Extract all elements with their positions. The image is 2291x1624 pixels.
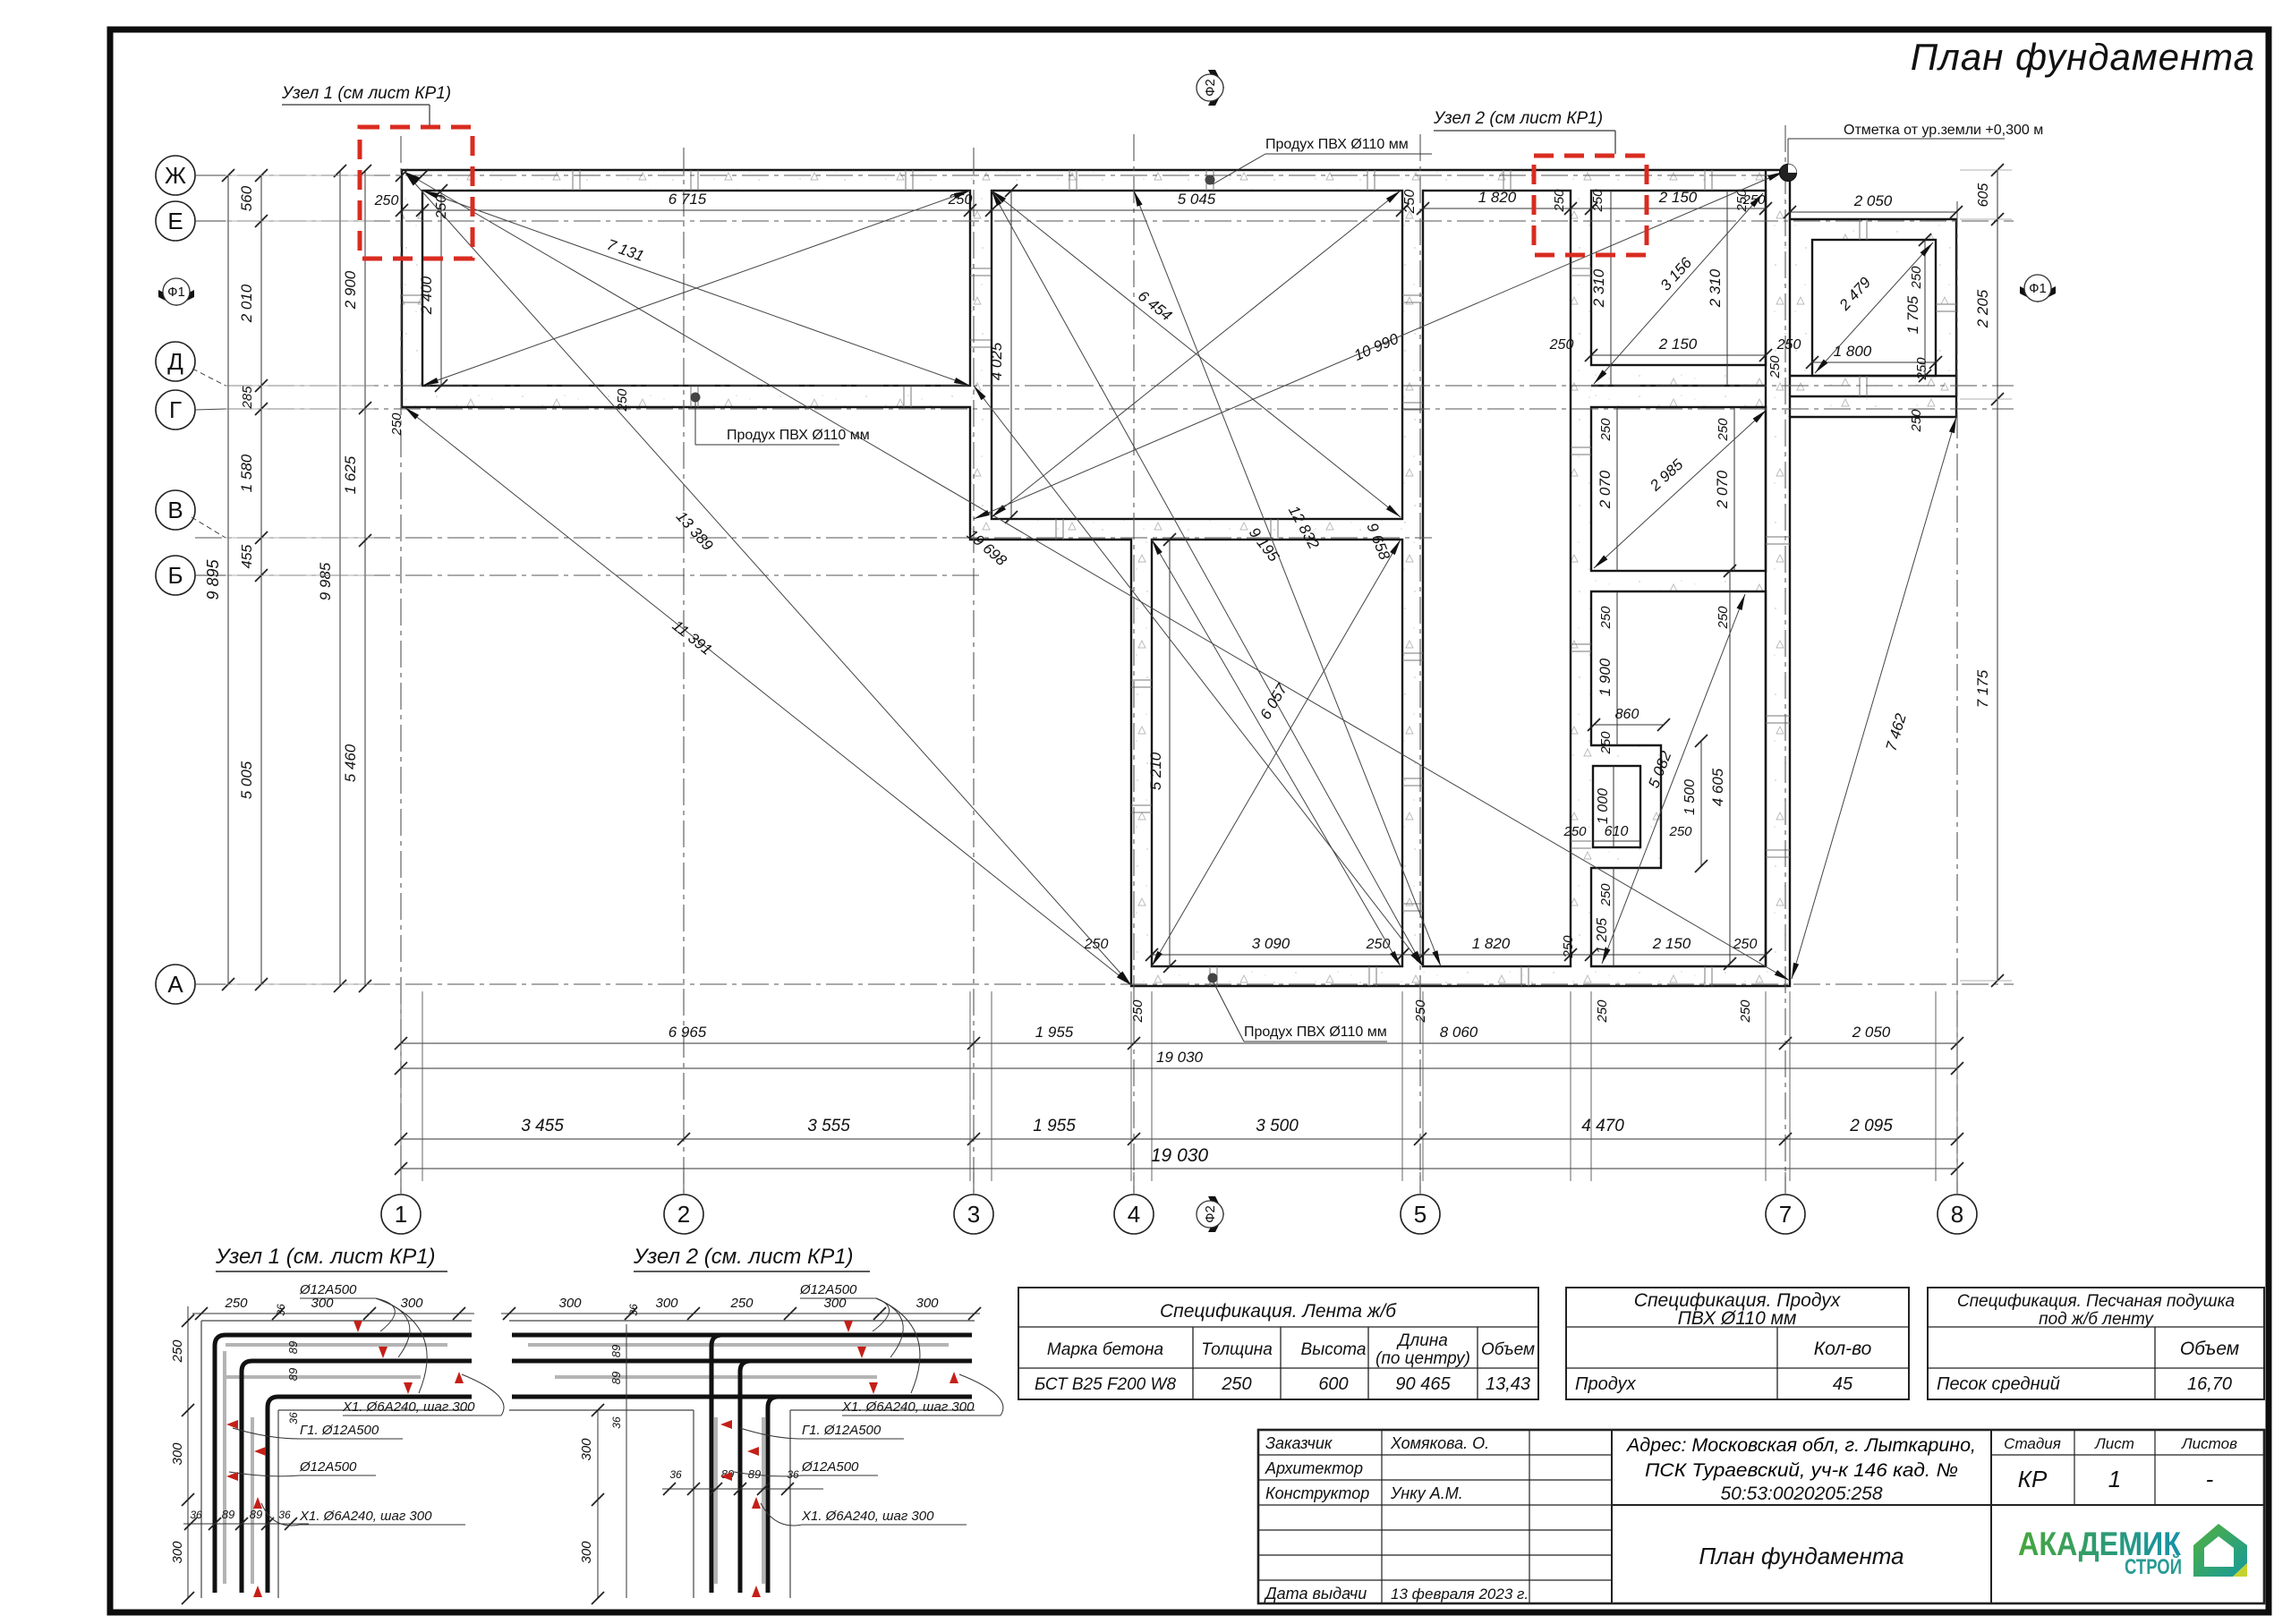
svg-text:Продух: Продух (1575, 1374, 1637, 1394)
svg-text:610: 610 (1605, 824, 1629, 839)
svg-text:Спецификация. Лента ж/б: Спецификация. Лента ж/б (1160, 1301, 1397, 1322)
svg-text:250: 250 (1130, 999, 1145, 1024)
svg-text:250: 250 (1914, 357, 1929, 381)
svg-text:Ø12А500: Ø12А500 (799, 1282, 857, 1297)
svg-text:250: 250 (1549, 337, 1574, 353)
svg-text:250: 250 (1598, 606, 1614, 630)
svg-text:13,43: 13,43 (1486, 1374, 1530, 1394)
svg-text:89: 89 (250, 1508, 262, 1521)
svg-text:Унку А.М.: Унку А.М. (1390, 1484, 1463, 1502)
svg-text:2 150: 2 150 (1658, 336, 1698, 353)
svg-text:1 820: 1 820 (1472, 935, 1511, 952)
svg-text:(по центру): (по центру) (1375, 1349, 1470, 1368)
svg-text:250: 250 (1563, 824, 1587, 839)
svg-text:Ø12А500: Ø12А500 (299, 1282, 357, 1297)
svg-text:250: 250 (1413, 999, 1428, 1024)
svg-text:300: 300 (916, 1296, 939, 1311)
svg-text:Узел 2 (см лист КР1): Узел 2 (см лист КР1) (1433, 109, 1603, 128)
svg-text:План фундамента: План фундамента (1911, 36, 2255, 78)
svg-text:89: 89 (286, 1341, 300, 1354)
svg-text:Дата выдачи: Дата выдачи (1264, 1585, 1367, 1603)
svg-text:250: 250 (1552, 189, 1567, 213)
svg-text:Стадия: Стадия (2004, 1435, 2061, 1452)
svg-text:Спецификация. Песчаная подушка: Спецификация. Песчаная подушка (1957, 1292, 2235, 1311)
svg-text:Ø12А500: Ø12А500 (801, 1459, 859, 1475)
svg-text:250: 250 (1595, 999, 1610, 1024)
svg-text:Адрес: Московская обл, г. Лытк: Адрес: Московская обл, г. Лыткарино, (1625, 1435, 1976, 1456)
svg-text:36: 36 (787, 1468, 799, 1481)
svg-text:36: 36 (190, 1509, 202, 1521)
svg-text:1 955: 1 955 (1035, 1024, 1074, 1041)
svg-text:7 175: 7 175 (1974, 669, 1991, 708)
svg-text:36: 36 (275, 1304, 287, 1316)
svg-text:Песок средний: Песок средний (1937, 1374, 2060, 1394)
svg-text:89: 89 (222, 1508, 234, 1521)
svg-text:250: 250 (1767, 355, 1783, 379)
svg-text:605: 605 (1976, 183, 1991, 208)
svg-text:250: 250 (1733, 937, 1758, 952)
svg-text:250: 250 (1668, 824, 1692, 839)
svg-text:36: 36 (610, 1416, 623, 1429)
svg-text:Узел 1 (см. лист КР1): Узел 1 (см. лист КР1) (215, 1245, 436, 1269)
svg-text:860: 860 (1615, 707, 1639, 722)
svg-text:Отметка от ур.земли +0,300 м: Отметка от ур.земли +0,300 м (1844, 123, 2043, 138)
svg-text:ПВХ Ø110 мм: ПВХ Ø110 мм (1678, 1308, 1797, 1329)
svg-text:89: 89 (609, 1372, 623, 1384)
svg-text:300: 300 (558, 1296, 582, 1311)
svg-text:1: 1 (2108, 1466, 2121, 1492)
svg-text:Е: Е (167, 208, 183, 234)
svg-text:250: 250 (170, 1339, 185, 1364)
svg-text:3: 3 (967, 1201, 980, 1228)
svg-text:План фундамента: План фундамента (1699, 1543, 1903, 1569)
svg-text:19 030: 19 030 (1156, 1049, 1204, 1066)
svg-text:Ф2: Ф2 (1203, 79, 1218, 97)
svg-text:2 310: 2 310 (1707, 268, 1724, 308)
svg-text:2 050: 2 050 (1853, 192, 1893, 209)
svg-text:4 605: 4 605 (1709, 768, 1726, 806)
svg-text:Г1. Ø12А500: Г1. Ø12А500 (802, 1423, 881, 1438)
svg-text:Ж: Ж (165, 162, 186, 189)
svg-text:под ж/б ленту: под ж/б ленту (2039, 1310, 2154, 1329)
svg-text:Заказчик: Заказчик (1265, 1434, 1333, 1452)
svg-text:2 310: 2 310 (1590, 268, 1607, 308)
svg-text:19 030: 19 030 (1151, 1145, 1209, 1166)
svg-text:13 февраля 2023 г.: 13 февраля 2023 г. (1391, 1586, 1529, 1603)
svg-text:ПСК Тураевский, уч-к 146 кад.: ПСК Тураевский, уч-к 146 кад. № (1645, 1460, 1958, 1481)
svg-text:250: 250 (389, 412, 405, 437)
svg-text:3 555: 3 555 (807, 1117, 850, 1135)
svg-text:2 150: 2 150 (1658, 189, 1698, 206)
svg-text:X1. Ø6А240, шаг 300: X1. Ø6А240, шаг 300 (801, 1509, 934, 1524)
svg-text:1 580: 1 580 (238, 454, 255, 492)
svg-text:2 900: 2 900 (342, 270, 359, 310)
svg-text:1 800: 1 800 (1834, 343, 1872, 360)
svg-text:В: В (167, 497, 183, 523)
svg-text:600: 600 (1318, 1374, 1348, 1394)
svg-text:5 045: 5 045 (1178, 191, 1216, 208)
svg-text:300: 300 (579, 1438, 594, 1461)
svg-text:36: 36 (627, 1304, 640, 1316)
svg-text:Узел 2 (см. лист КР1): Узел 2 (см. лист КР1) (633, 1245, 854, 1269)
svg-text:90 465: 90 465 (1395, 1374, 1451, 1394)
svg-text:БСТ В25 F200 W8: БСТ В25 F200 W8 (1035, 1375, 1177, 1394)
svg-text:Г1. Ø12А500: Г1. Ø12А500 (300, 1423, 379, 1438)
svg-text:СТРОЙ: СТРОЙ (2125, 1554, 2182, 1579)
svg-text:8 060: 8 060 (1440, 1024, 1478, 1041)
svg-text:89: 89 (286, 1368, 300, 1381)
svg-text:9 985: 9 985 (317, 562, 334, 600)
svg-text:2: 2 (677, 1201, 690, 1228)
svg-text:1 705: 1 705 (1904, 295, 1921, 334)
svg-text:250: 250 (374, 193, 399, 208)
svg-text:285: 285 (240, 386, 255, 410)
svg-text:А: А (167, 971, 183, 998)
svg-text:6 965: 6 965 (669, 1024, 707, 1041)
svg-text:1 000: 1 000 (1596, 788, 1611, 824)
svg-text:7: 7 (1779, 1201, 1792, 1228)
svg-text:КР: КР (2018, 1466, 2048, 1492)
svg-text:455: 455 (240, 545, 255, 569)
svg-text:16,70: 16,70 (2187, 1374, 2232, 1394)
svg-text:1 900: 1 900 (1597, 658, 1614, 696)
svg-text:250: 250 (1221, 1374, 1251, 1394)
svg-text:Толщина: Толщина (1201, 1340, 1273, 1359)
svg-text:Ф1: Ф1 (2029, 281, 2047, 296)
svg-text:Продух ПВХ Ø110 мм: Продух ПВХ Ø110 мм (727, 428, 870, 443)
svg-text:2 050: 2 050 (1852, 1024, 1891, 1041)
svg-text:5: 5 (1414, 1201, 1427, 1228)
svg-text:2 400: 2 400 (418, 276, 435, 315)
svg-text:5 005: 5 005 (238, 761, 255, 799)
svg-text:Б: Б (167, 562, 183, 589)
svg-text:3 500: 3 500 (1256, 1117, 1299, 1135)
svg-text:1 500: 1 500 (1682, 779, 1698, 815)
svg-text:36: 36 (287, 1412, 300, 1424)
svg-text:4 470: 4 470 (1581, 1117, 1624, 1135)
svg-text:8: 8 (1951, 1201, 1963, 1228)
svg-text:-: - (2206, 1466, 2214, 1492)
svg-text:5 210: 5 210 (1147, 752, 1164, 790)
svg-text:3 090: 3 090 (1252, 935, 1290, 952)
svg-text:89: 89 (609, 1345, 623, 1357)
svg-text:250: 250 (1909, 409, 1924, 433)
svg-text:Листов: Листов (2181, 1435, 2237, 1452)
svg-text:Высота: Высота (1301, 1340, 1367, 1359)
svg-text:Продух ПВХ Ø110 мм: Продух ПВХ Ø110 мм (1265, 137, 1409, 152)
svg-text:9 895: 9 895 (204, 558, 222, 599)
svg-text:Марка бетона: Марка бетона (1047, 1340, 1163, 1359)
svg-text:Объем: Объем (1481, 1340, 1535, 1359)
svg-text:250: 250 (1716, 606, 1731, 630)
svg-text:250: 250 (1716, 418, 1731, 442)
svg-text:250: 250 (1598, 418, 1614, 442)
svg-text:Узел 1 (см лист КР1): Узел 1 (см лист КР1) (281, 84, 451, 103)
svg-text:Лист: Лист (2094, 1435, 2134, 1452)
svg-text:6 715: 6 715 (669, 191, 707, 208)
svg-text:300: 300 (170, 1442, 185, 1466)
svg-text:2 150: 2 150 (1652, 935, 1691, 952)
svg-text:50:53:0020205:258: 50:53:0020205:258 (1720, 1484, 1882, 1504)
svg-text:250: 250 (1590, 189, 1605, 213)
svg-text:Ø12А500: Ø12А500 (299, 1459, 357, 1475)
svg-text:Хомякова. О.: Хомякова. О. (1390, 1434, 1489, 1452)
svg-text:X1. Ø6А240, шаг 300: X1. Ø6А240, шаг 300 (299, 1509, 432, 1524)
svg-text:Д: Д (167, 348, 183, 375)
svg-text:36: 36 (669, 1468, 682, 1481)
svg-text:Ф2: Ф2 (1203, 1205, 1218, 1223)
svg-text:3 455: 3 455 (521, 1117, 564, 1135)
svg-text:1 820: 1 820 (1478, 189, 1517, 206)
svg-text:Конструктор: Конструктор (1265, 1484, 1369, 1502)
svg-text:300: 300 (400, 1296, 423, 1311)
svg-text:Архитектор: Архитектор (1265, 1459, 1363, 1477)
svg-text:Ф1: Ф1 (167, 285, 185, 300)
svg-text:560: 560 (238, 185, 255, 211)
svg-text:1 955: 1 955 (1033, 1117, 1076, 1135)
svg-text:250: 250 (1402, 190, 1418, 215)
svg-text:1 625: 1 625 (342, 455, 359, 494)
svg-text:250: 250 (615, 388, 630, 412)
svg-text:2 095: 2 095 (1849, 1117, 1893, 1135)
svg-text:4 025: 4 025 (988, 342, 1005, 380)
svg-text:300: 300 (655, 1296, 678, 1311)
svg-text:2 205: 2 205 (1974, 289, 1991, 328)
svg-text:Продух ПВХ Ø110 мм: Продух ПВХ Ø110 мм (1244, 1025, 1387, 1040)
svg-text:Объем: Объем (2180, 1339, 2239, 1359)
svg-text:300: 300 (579, 1541, 594, 1564)
svg-text:250: 250 (729, 1296, 754, 1311)
svg-text:X1. Ø6А240, шаг 300: X1. Ø6А240, шаг 300 (841, 1399, 975, 1415)
svg-text:1: 1 (395, 1201, 407, 1228)
svg-text:2 070: 2 070 (1714, 470, 1731, 509)
svg-text:Длина: Длина (1396, 1331, 1448, 1350)
svg-text:300: 300 (170, 1541, 185, 1564)
svg-text:250: 250 (1366, 937, 1391, 952)
svg-text:5 460: 5 460 (342, 744, 359, 782)
svg-text:250: 250 (1598, 883, 1614, 907)
svg-text:36: 36 (278, 1509, 291, 1521)
svg-text:4: 4 (1128, 1201, 1140, 1228)
svg-text:45: 45 (1833, 1374, 1853, 1394)
svg-text:250: 250 (1561, 935, 1576, 959)
svg-text:2 010: 2 010 (238, 284, 255, 323)
svg-text:250: 250 (1598, 731, 1614, 755)
svg-text:Кол-во: Кол-во (1814, 1339, 1872, 1359)
svg-text:250: 250 (1738, 999, 1753, 1024)
svg-text:Г: Г (169, 396, 182, 423)
svg-text:2 070: 2 070 (1597, 470, 1614, 509)
svg-text:250: 250 (224, 1296, 248, 1311)
svg-text:X1. Ø6А240, шаг 300: X1. Ø6А240, шаг 300 (342, 1399, 475, 1415)
svg-text:250: 250 (1909, 266, 1924, 290)
svg-text:250: 250 (1776, 337, 1801, 353)
